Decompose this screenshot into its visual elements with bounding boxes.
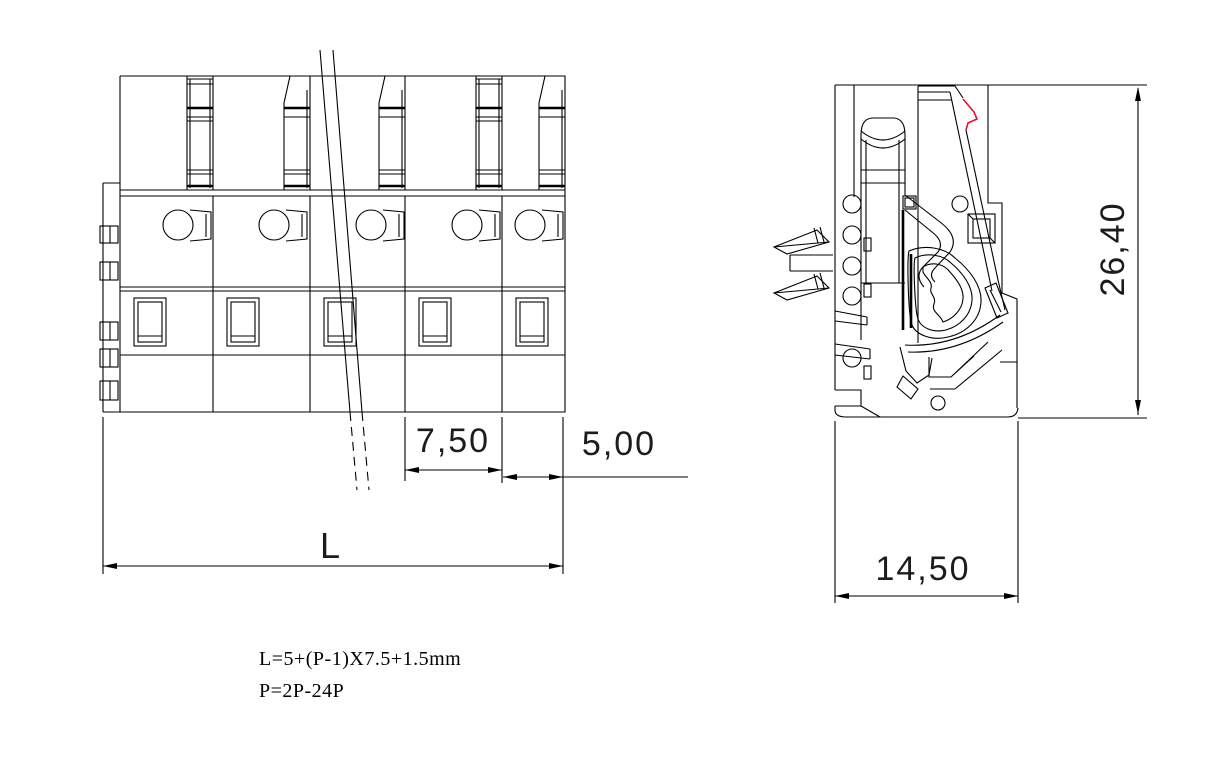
actuator-circles [163,210,563,241]
push-plunger [861,118,916,340]
bottom-cavity-detail [897,342,1002,399]
test-probe-arrows [774,227,833,300]
formula-note-length: L=5+(P-1)X7.5+1.5mm [259,647,461,671]
clamp-levers [187,76,565,190]
side-body-outline [835,85,1018,417]
dimension-depth-label: 14,50 [843,552,1003,586]
front-body-outline [103,76,565,412]
spring-clamp [905,247,1003,352]
formula-note-poles: P=2P-24P [259,679,344,703]
dimension-end-width-label: 5,00 [559,427,679,461]
housing-shelves [835,311,870,359]
break-lines [320,50,369,490]
dimension-height-label: 26,40 [1096,164,1130,334]
side-view-dimension-lines [835,85,1147,603]
drawing-sheet: 7,50 5,00 L 26,40 14,50 L=5+(P-1)X7.5+1.… [0,0,1221,768]
red-highlight-edge [963,99,977,130]
side-view [774,85,1018,417]
dimension-total-length-label: L [301,528,361,564]
linework-svg [0,0,1221,768]
dimension-pitch-label: 7,50 [393,424,513,458]
